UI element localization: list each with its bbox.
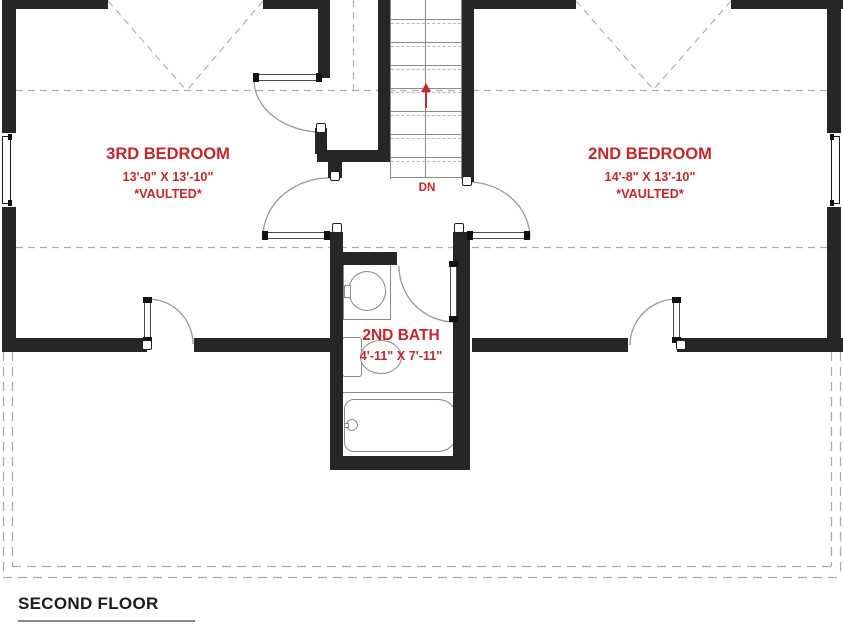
wall-south-mid: [194, 338, 332, 352]
bedroom3-note: *VAULTED*: [71, 186, 265, 201]
bedroom2-door-icon: [468, 232, 530, 239]
wall-south-right-a: [472, 338, 628, 352]
roof-valley-line: [654, 1, 731, 89]
wall-top-a: [2, 0, 108, 9]
window-icon: [2, 136, 11, 204]
door-cap: [253, 73, 259, 82]
hinge-cap: [454, 223, 464, 233]
bathtub-faucet-spout: [344, 423, 349, 428]
window-stop: [8, 200, 12, 206]
bath-door-arc: [399, 266, 453, 322]
door-cap: [262, 231, 268, 240]
bath2-name: 2ND BATH: [333, 327, 469, 345]
bath-door-icon: [450, 262, 457, 322]
bath2-dimensions: 4'-11" X 7'-11": [333, 348, 469, 363]
sink-icon: [348, 271, 386, 311]
door-cap: [316, 73, 322, 82]
hinge-cap: [330, 171, 340, 181]
bedroom3-door-icon: [263, 232, 330, 239]
bedroom2-dimensions: 14'-8" X 13'-10": [553, 169, 747, 184]
south-right-door-arc: [630, 299, 677, 345]
wall-top-d: [731, 0, 843, 9]
door-cap: [143, 297, 152, 303]
wall-bath-south: [330, 456, 470, 470]
bedroom3-name: 3RD BEDROOM: [71, 144, 265, 164]
bedroom3-door-arc: [263, 178, 335, 237]
bedroom2-door-arc: [468, 182, 530, 238]
bathtub-icon: [344, 399, 458, 452]
hinge-cap: [316, 123, 326, 133]
wall-stair-right: [462, 0, 474, 182]
window-stop: [830, 134, 834, 140]
wall-stair-left: [378, 0, 390, 162]
door-cap: [449, 261, 458, 267]
wall-top-c: [473, 0, 576, 9]
bedroom2-name: 2ND BEDROOM: [553, 144, 747, 164]
wall-closet: [318, 0, 330, 78]
page-title: SECOND FLOOR: [18, 594, 159, 614]
floor-plan: 3RD BEDROOM 13'-0" X 13'-10" *VAULTED* 2…: [0, 0, 843, 632]
window-stop: [8, 134, 12, 140]
down-arrow-icon: [425, 91, 427, 108]
south-left-door-arc: [148, 299, 193, 344]
window-icon: [831, 136, 840, 204]
door-cap: [672, 297, 681, 303]
closet-door-icon: [254, 74, 322, 81]
closet-door-arc: [254, 80, 322, 132]
door-cap: [524, 231, 530, 240]
hinge-cap: [142, 340, 152, 350]
door-cap: [467, 231, 473, 240]
tub-divider-line: [332, 392, 453, 393]
door-cap: [449, 316, 458, 322]
door-cap: [324, 231, 330, 240]
hinge-cap: [462, 176, 472, 186]
roof-valley-line: [187, 1, 263, 90]
bedroom3-dimensions: 13'-0" X 13'-10": [71, 169, 265, 184]
wall-south-right-b: [677, 338, 843, 352]
down-arrow-head: [421, 83, 431, 92]
stairs-icon: [390, 0, 462, 179]
bedroom2-note: *VAULTED*: [553, 186, 747, 201]
wall-bath-north: [332, 252, 397, 265]
roof-valley-line: [576, 1, 653, 89]
hinge-cap: [332, 223, 342, 233]
stairs-dn-label: DN: [408, 180, 447, 194]
wall-south-left: [2, 338, 147, 352]
window-stop: [830, 200, 834, 206]
roof-valley-line: [108, 1, 186, 90]
title-underline: [18, 620, 195, 622]
hinge-cap: [676, 340, 686, 350]
sink-faucet-icon: [344, 285, 351, 298]
